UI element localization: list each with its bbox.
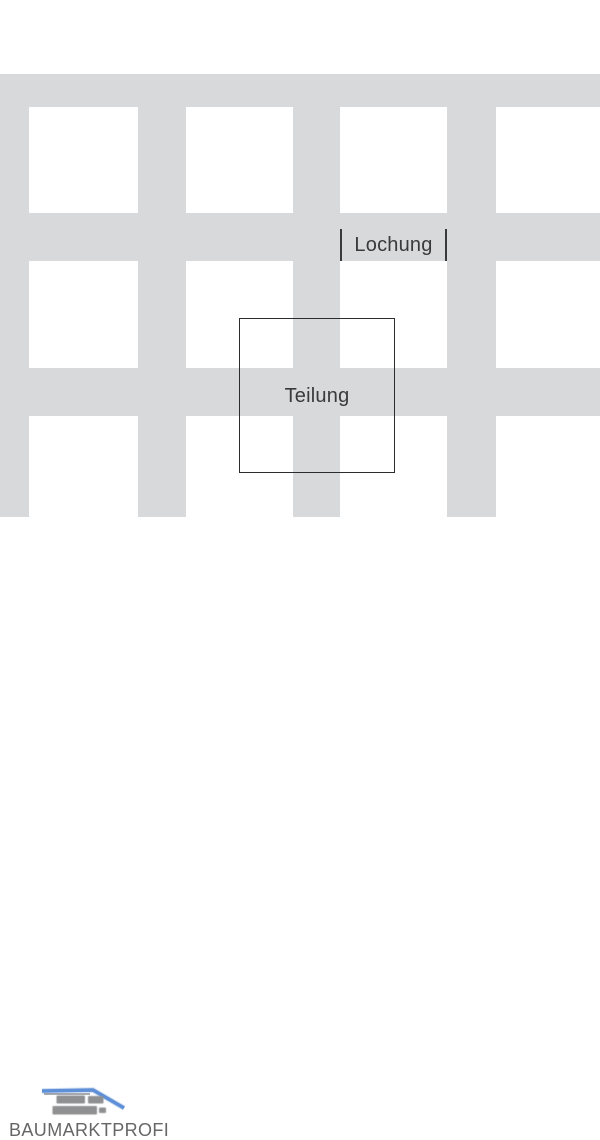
perforation-hole bbox=[29, 107, 138, 213]
perforation-hole bbox=[496, 416, 600, 517]
teilung-outline: Teilung bbox=[239, 318, 395, 473]
logo-wordmark: BAUMARKTPROFI bbox=[9, 1120, 169, 1140]
product-diagram: Lochung Teilung BAUMARKTPROFI bbox=[0, 0, 600, 600]
perforation-hole bbox=[496, 261, 600, 368]
baumarktprofi-logo: BAUMARKTPROFI bbox=[0, 540, 220, 600]
perforation-hole bbox=[29, 416, 138, 517]
perforation-hole bbox=[186, 107, 293, 213]
lochung-label: Lochung bbox=[342, 229, 445, 261]
perforation-hole bbox=[29, 261, 138, 368]
teilung-label: Teilung bbox=[285, 386, 350, 406]
logo-roof-icon bbox=[35, 1085, 135, 1120]
perforation-hole bbox=[496, 107, 600, 213]
dimension-tick-right bbox=[445, 229, 447, 261]
perforation-hole bbox=[340, 107, 447, 213]
lochung-dimension: Lochung bbox=[340, 229, 447, 261]
